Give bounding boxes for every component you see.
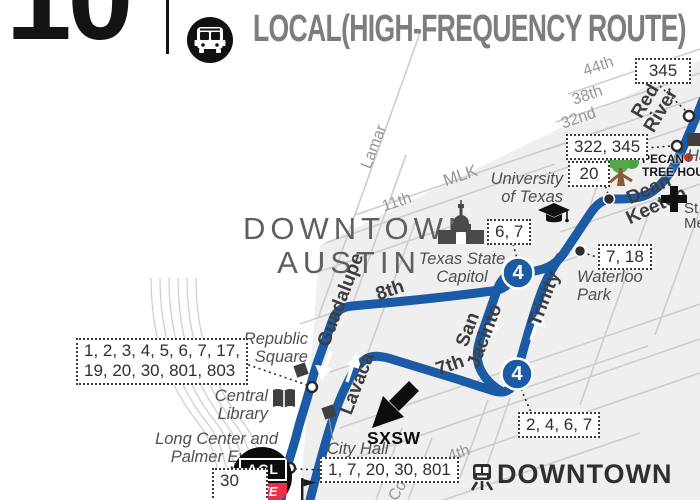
graduation-cap-icon (538, 203, 570, 232)
sxsw-arrow-icon (368, 380, 420, 435)
routes-box-republic-square: 1, 2, 3, 4, 5, 6, 7, 17, 19, 20, 30, 801… (76, 338, 248, 385)
routes-box-345: 345 (635, 58, 691, 84)
route-map-page: 10 LOCAL(HIGH-FREQUENCY ROUTE) DOWNTOWN … (0, 0, 700, 500)
routes-box-6-7: 6, 7 (487, 219, 531, 245)
routes-box-20: 20 (568, 161, 610, 187)
waterloo-park-label: Waterloo Park (577, 268, 643, 305)
flag-icon (300, 478, 318, 500)
route-4-badge-label: 4 (502, 262, 534, 285)
central-library-label: Central Library (200, 387, 268, 424)
route-type-title: LOCAL(HIGH-FREQUENCY ROUTE) (253, 8, 686, 51)
library-book-icon (272, 388, 296, 415)
route-4-badge-label: 4 (501, 363, 533, 386)
pecan-line2: TREE HOUSE (642, 166, 700, 179)
routes-box-2-4-6-7: 2, 4, 6, 7 (518, 412, 600, 438)
texas-capitol-label: Texas State Capitol (412, 250, 512, 287)
medical-label-me: Me (684, 215, 700, 232)
route-number: 10 (6, 0, 129, 58)
rail-station-icon (469, 460, 495, 497)
hancock-label-partial: Ha (687, 147, 700, 165)
bus-icon (186, 16, 234, 69)
routes-box-7-18: 7, 18 (598, 244, 652, 270)
sxsw-label: SXSW (367, 428, 421, 449)
routes-box-322-345: 322, 345 (566, 134, 648, 160)
capitol-icon (436, 200, 486, 249)
hancock-marker (687, 133, 700, 146)
downtown-station-label: DOWNTOWN (497, 459, 672, 490)
university-label: University of Texas (463, 170, 563, 207)
routes-box-city-hall: 1, 7, 20, 30, 801 (320, 457, 459, 483)
header-divider (166, 0, 169, 54)
routes-box-30: 30 (212, 468, 268, 500)
